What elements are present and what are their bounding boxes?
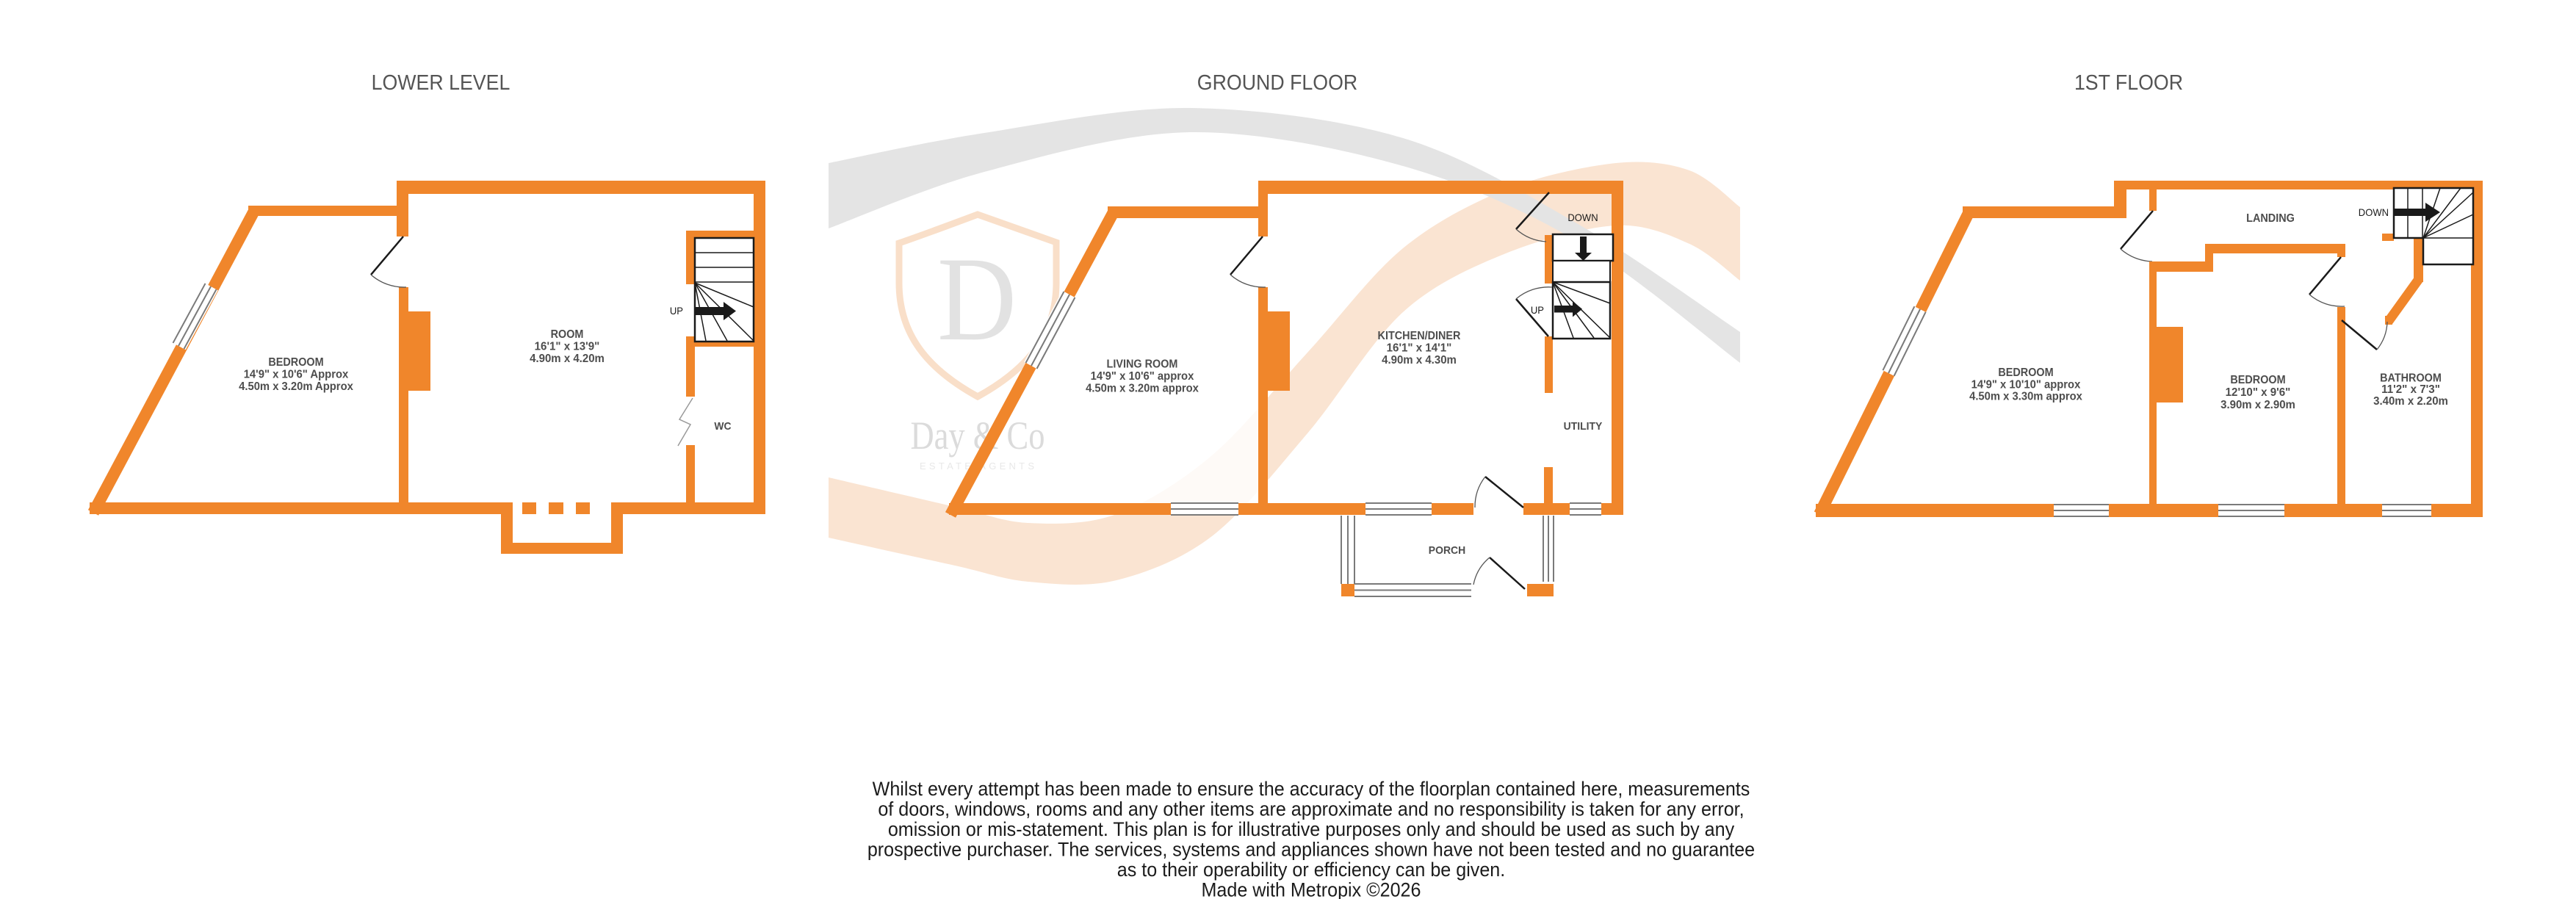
svg-text:as to their operability or eff: as to their operability or efficiency ca… xyxy=(1117,859,1506,881)
svg-text:Day & Co: Day & Co xyxy=(911,414,1045,458)
svg-text:ROOM: ROOM xyxy=(551,328,584,341)
svg-text:Made with Metropix ©2026: Made with Metropix ©2026 xyxy=(1202,879,1421,899)
svg-text:BATHROOM: BATHROOM xyxy=(2380,372,2442,385)
svg-text:LIVING ROOM: LIVING ROOM xyxy=(1107,358,1178,371)
svg-text:3.40m x 2.20m: 3.40m x 2.20m xyxy=(2373,395,2448,408)
svg-text:4.50m x 3.30m approx: 4.50m x 3.30m approx xyxy=(1969,391,2082,403)
svg-text:14'9" x 10'10" approx: 14'9" x 10'10" approx xyxy=(1971,378,2081,391)
svg-text:LANDING: LANDING xyxy=(2246,212,2295,225)
svg-text:16'1" x 14'1": 16'1" x 14'1" xyxy=(1387,342,1452,355)
svg-text:14'9" x 10'6" approx: 14'9" x 10'6" approx xyxy=(1091,370,1194,383)
svg-text:3.90m x 2.90m: 3.90m x 2.90m xyxy=(2220,399,2295,411)
svg-text:GROUND FLOOR: GROUND FLOOR xyxy=(1197,71,1357,95)
svg-text:4.50m x 3.20m Approx: 4.50m x 3.20m Approx xyxy=(239,380,353,393)
svg-text:omission or mis-statement. Thi: omission or mis-statement. This plan is … xyxy=(888,818,1735,840)
svg-text:UP: UP xyxy=(670,305,683,317)
svg-text:KITCHEN/DINER: KITCHEN/DINER xyxy=(1378,330,1461,342)
svg-text:DOWN: DOWN xyxy=(1567,212,1598,223)
svg-text:LOWER LEVEL: LOWER LEVEL xyxy=(372,71,510,95)
svg-text:Whilst every attempt has been: Whilst every attempt has been made to en… xyxy=(873,778,1750,800)
svg-text:4.90m x 4.20m: 4.90m x 4.20m xyxy=(530,353,605,365)
svg-text:prospective purchaser. The ser: prospective purchaser. The services, sys… xyxy=(867,839,1755,861)
svg-text:BEDROOM: BEDROOM xyxy=(268,356,323,369)
svg-text:D: D xyxy=(937,233,1017,366)
svg-text:16'1" x 13'9": 16'1" x 13'9" xyxy=(535,341,600,353)
svg-text:BEDROOM: BEDROOM xyxy=(1998,367,2053,379)
svg-text:BEDROOM: BEDROOM xyxy=(2230,374,2285,386)
svg-text:1ST FLOOR: 1ST FLOOR xyxy=(2074,71,2183,95)
svg-text:WC: WC xyxy=(714,420,731,433)
svg-text:of doors, windows, rooms and a: of doors, windows, rooms and any other i… xyxy=(878,798,1744,820)
svg-text:4.50m x 3.20m approx: 4.50m x 3.20m approx xyxy=(1086,383,1199,395)
svg-text:4.90m x 4.30m: 4.90m x 4.30m xyxy=(1382,354,1457,367)
svg-text:UTILITY: UTILITY xyxy=(1564,420,1603,433)
svg-text:11'2" x 7'3": 11'2" x 7'3" xyxy=(2381,383,2440,396)
svg-text:UP: UP xyxy=(1531,304,1544,316)
svg-text:PORCH: PORCH xyxy=(1429,544,1465,557)
svg-text:12'10" x 9'6": 12'10" x 9'6" xyxy=(2226,386,2291,399)
svg-text:DOWN: DOWN xyxy=(2359,206,2389,218)
svg-text:14'9" x 10'6" Approx: 14'9" x 10'6" Approx xyxy=(244,369,349,381)
